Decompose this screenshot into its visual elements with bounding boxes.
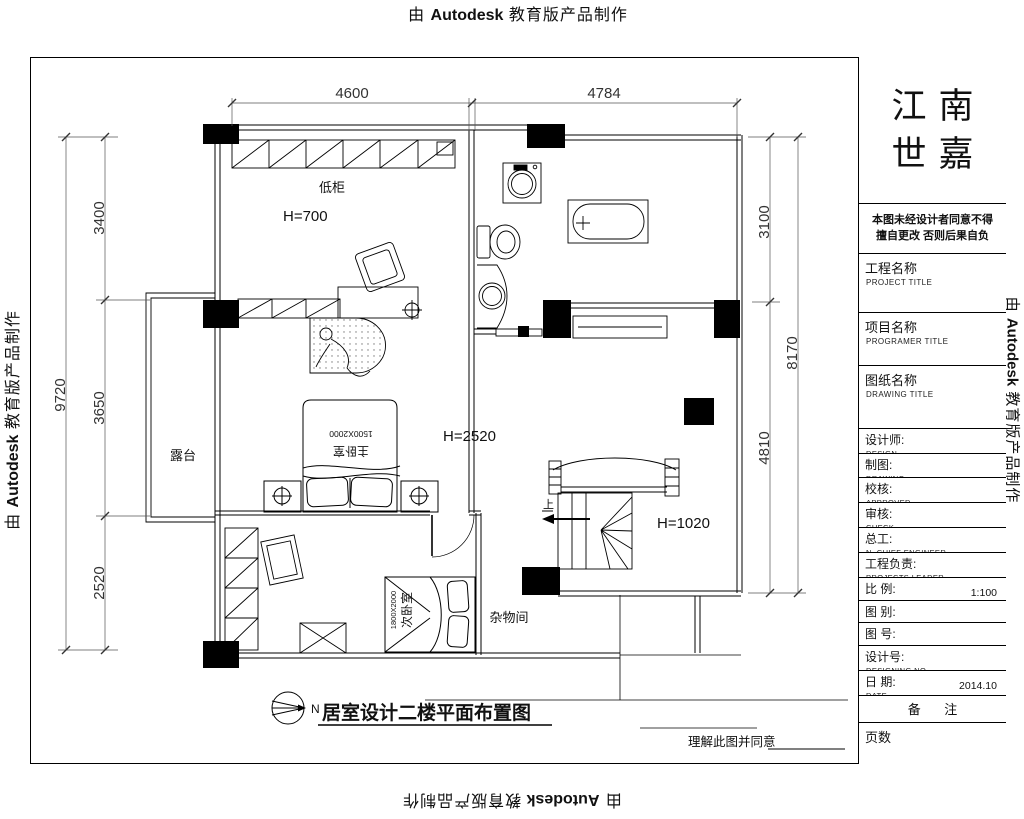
label-up: 上 bbox=[543, 498, 554, 511]
dim-left-total: 9720 bbox=[52, 378, 69, 411]
wardrobe-second bbox=[225, 528, 258, 650]
cad-sheet: 由 Autodesk 教育版产品制作 由 Autodesk 教育版产品制作 由 … bbox=[0, 0, 1024, 819]
label-master-bed-size: 1500X2000 bbox=[329, 429, 373, 439]
toilet bbox=[477, 225, 520, 259]
floor-plan: 4600 4784 9720 3400 3650 2520 3100 4810 … bbox=[0, 0, 1024, 819]
bathtub bbox=[568, 200, 648, 243]
dim-right-total: 8170 bbox=[784, 336, 801, 369]
label-h2520: H=2520 bbox=[443, 428, 496, 445]
dim-top-right: 4784 bbox=[587, 85, 620, 102]
second-bed bbox=[385, 577, 475, 652]
label-h700: H=700 bbox=[283, 208, 328, 225]
second-bedroom-door bbox=[432, 515, 474, 557]
label-second-bed: 次卧室 bbox=[399, 592, 414, 628]
long-cabinet bbox=[573, 316, 667, 338]
walls bbox=[215, 125, 742, 658]
washing-machine bbox=[503, 163, 541, 203]
plan-title: 居室设计二楼平面布置图 bbox=[322, 701, 531, 724]
dim-right-2: 4810 bbox=[756, 431, 773, 464]
label-north: N bbox=[311, 702, 320, 716]
bay-window bbox=[549, 458, 679, 496]
dimension-lines bbox=[58, 98, 806, 650]
bathroom-door bbox=[496, 326, 542, 337]
north-arrow bbox=[272, 692, 306, 724]
stairs-up-arrow bbox=[542, 511, 590, 524]
misc-furniture bbox=[261, 535, 346, 653]
low-cabinet bbox=[232, 140, 455, 168]
dim-right-1: 3100 bbox=[756, 205, 773, 238]
chaise-lounge bbox=[310, 318, 386, 376]
structural-columns bbox=[203, 124, 740, 668]
desk bbox=[338, 241, 422, 320]
label-low-cabinet: 低柜 bbox=[319, 180, 345, 195]
agreement-text: 理解此图并同意 bbox=[688, 734, 776, 749]
dim-left-1: 3400 bbox=[91, 201, 108, 234]
dim-top-left: 4600 bbox=[335, 85, 368, 102]
label-terrace: 露台 bbox=[170, 448, 196, 463]
label-second-bed-size: 1800X2000 bbox=[389, 591, 398, 629]
label-h1020: H=1020 bbox=[657, 515, 710, 532]
stairs bbox=[558, 493, 632, 569]
wardrobe-master bbox=[238, 299, 340, 318]
dim-left-2: 3650 bbox=[91, 391, 108, 424]
wash-basin bbox=[477, 265, 507, 328]
label-master-bed: 主卧室 bbox=[333, 444, 369, 459]
dim-left-3: 2520 bbox=[91, 566, 108, 599]
dimension-ticks bbox=[62, 99, 802, 654]
label-storage: 杂物间 bbox=[489, 610, 528, 625]
